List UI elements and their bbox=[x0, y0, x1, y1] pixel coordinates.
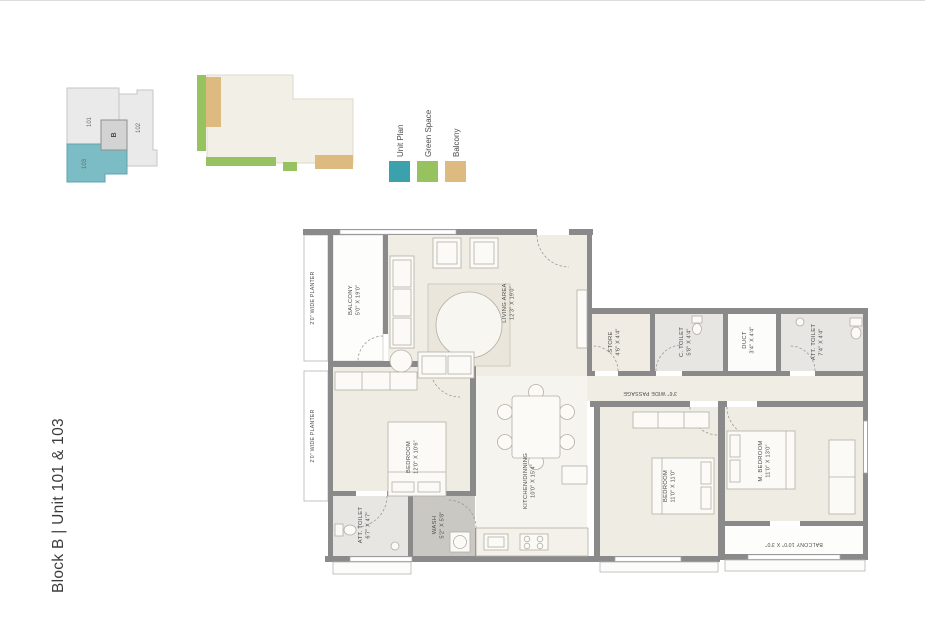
key-plan-label-103: 103 bbox=[82, 158, 88, 169]
m-bedroom-name: M. BEDROOM bbox=[758, 440, 764, 481]
pillow bbox=[418, 482, 440, 492]
armchair-cushion bbox=[437, 242, 457, 264]
washbasin bbox=[796, 318, 804, 326]
toilet-tank bbox=[850, 318, 862, 326]
c-toilet-dims: 5'8" X 4'4" bbox=[687, 328, 693, 355]
wardrobe bbox=[633, 412, 709, 428]
pillow bbox=[730, 460, 740, 482]
wash-name: WASH bbox=[432, 516, 438, 534]
bedroom-left-name: BEDROOM bbox=[406, 441, 412, 473]
c-toilet-name: C. TOILET bbox=[679, 327, 685, 357]
dining-chair bbox=[498, 405, 513, 420]
planter-top bbox=[304, 235, 328, 361]
burner bbox=[524, 543, 530, 549]
key-plan-label-102: 102 bbox=[136, 122, 142, 133]
loveseat-cushion bbox=[448, 356, 471, 374]
store-dims: 4'6" X 4'4" bbox=[616, 328, 622, 355]
pillow bbox=[701, 462, 711, 484]
balcony-left-name: BALCONY bbox=[348, 285, 354, 315]
burner bbox=[537, 536, 543, 542]
floor-plan: 2'0" WIDE PLANTER 2'0" WIDE PLANTER BALC… bbox=[300, 226, 875, 586]
ledges bbox=[333, 560, 865, 574]
site-plan-balcony-strip-bottom bbox=[315, 155, 353, 169]
pillow bbox=[392, 482, 414, 492]
site-plan bbox=[195, 69, 363, 181]
bedroom-left-dims: 12'0" X 10'6" bbox=[414, 440, 420, 474]
site-plan-footprint bbox=[207, 75, 353, 163]
side-table bbox=[390, 350, 412, 372]
cabinet bbox=[577, 290, 587, 348]
page-title: Block B | Unit 101 & 103 bbox=[50, 413, 78, 593]
balcony-bottom bbox=[725, 526, 863, 554]
armchair-cushion bbox=[474, 242, 494, 264]
dining-chair bbox=[560, 405, 575, 420]
key-plan-label-101: 101 bbox=[87, 116, 93, 127]
toilet-bowl bbox=[851, 327, 861, 339]
floorplan-page: Block B | Unit 101 & 103 101 102 103 B U… bbox=[0, 0, 925, 636]
wardrobe bbox=[335, 372, 417, 390]
legend-chip-green-space bbox=[417, 161, 438, 182]
att-toilet-top-dims: 7'4" X 4'4" bbox=[819, 328, 825, 355]
dining-chair bbox=[560, 435, 575, 450]
planter-bottom bbox=[304, 371, 328, 501]
toilet-bowl bbox=[344, 525, 356, 535]
site-plan-green-strip-bottom bbox=[206, 157, 276, 166]
fridge bbox=[562, 466, 587, 484]
toilet-bowl bbox=[693, 324, 702, 335]
living-dims: 12'3" X 19'0" bbox=[510, 286, 516, 320]
legend-label-balcony: Balcony bbox=[452, 129, 461, 157]
dining-table bbox=[512, 396, 560, 458]
key-plan-label-b: B bbox=[111, 132, 118, 137]
sofa-cushion bbox=[393, 318, 411, 345]
sofa-cushion bbox=[393, 260, 411, 287]
living-name: LIVING AREA bbox=[502, 283, 508, 322]
burner bbox=[537, 543, 543, 549]
legend-chip-balcony bbox=[445, 161, 466, 182]
loveseat-cushion bbox=[422, 356, 446, 374]
planter-bottom-label: 2'0" WIDE PLANTER bbox=[310, 409, 316, 462]
coffee-table bbox=[436, 292, 502, 358]
legend-label-green-space: Green Space bbox=[424, 109, 433, 157]
burner bbox=[524, 536, 530, 542]
bedroom-mid-name: BEDROOM bbox=[663, 470, 669, 502]
wash-dims: 5'2" X 5'8" bbox=[440, 511, 446, 538]
passage-label: 3'6" WIDE PASSAGE bbox=[623, 390, 677, 396]
balcony-bottom-label: BALCONY 10'0" X 3'0" bbox=[765, 541, 823, 547]
toilet-tank bbox=[692, 316, 702, 323]
m-bedroom-dims: 11'0" X 13'0" bbox=[766, 444, 772, 477]
legend-label-unit-plan: Unit Plan bbox=[396, 125, 405, 157]
balcony-left-dims: 5'0" X 19'0" bbox=[356, 285, 362, 315]
site-plan-balcony-strip-top bbox=[206, 77, 221, 127]
att-toilet-top-name: ATT. TOILET bbox=[811, 324, 817, 361]
pillow bbox=[701, 487, 711, 509]
sink-basin bbox=[488, 537, 504, 547]
store-name: STORE bbox=[608, 331, 614, 352]
pillow bbox=[730, 435, 740, 457]
duct-name: DUCT bbox=[742, 331, 748, 349]
kitchen-name: KITCHEN/DINNING bbox=[523, 453, 529, 509]
washbasin bbox=[391, 542, 399, 550]
site-plan-green-strip-small bbox=[283, 162, 297, 171]
att-toilet-bottom-name: ATT. TOILET bbox=[358, 507, 364, 544]
bedroom-mid-dims: 11'0" X 11'0" bbox=[671, 470, 677, 503]
sofa-cushion bbox=[393, 289, 411, 316]
planter-top-label: 2'0" WIDE PLANTER bbox=[310, 271, 316, 324]
kitchen-dims: 10'0" X 15'4" bbox=[531, 464, 537, 498]
stove bbox=[520, 534, 548, 550]
toilet-tank bbox=[335, 524, 343, 536]
washing-machine-drum bbox=[454, 536, 467, 549]
key-plan: 101 102 103 B bbox=[55, 76, 170, 191]
site-plan-green-strip-left bbox=[197, 75, 206, 151]
passage bbox=[587, 376, 863, 401]
att-toilet-bottom-dims: 6'7" X 4'7" bbox=[366, 511, 372, 538]
legend: Unit Plan Green Space Balcony bbox=[383, 99, 473, 191]
dining-chair bbox=[498, 435, 513, 450]
legend-chip-unit-plan bbox=[389, 161, 410, 182]
duct-dims: 3'4" X 4'4" bbox=[750, 326, 756, 353]
